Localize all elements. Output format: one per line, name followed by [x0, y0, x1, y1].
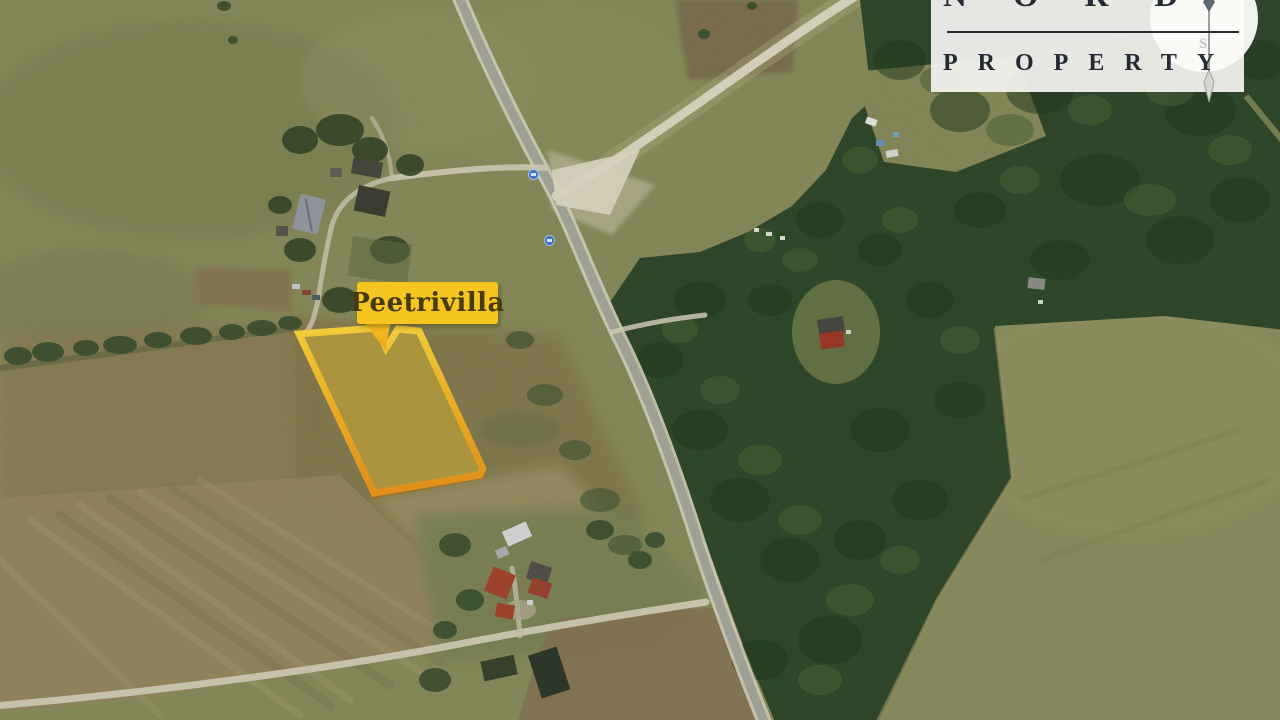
satellite-map-canvas	[0, 0, 1280, 720]
logo-divider	[947, 31, 1239, 33]
logo-line2-property: PROPERTY	[943, 51, 1234, 75]
route-marker-icon	[544, 235, 555, 246]
property-label: Peetrivilla	[357, 282, 498, 324]
property-label-text: Peetrivilla	[350, 288, 505, 318]
route-marker-icon	[528, 169, 539, 180]
route-marker-glyph	[547, 239, 552, 242]
logo-line1-nord: NORD	[943, 0, 1224, 13]
nord-property-logo: S NORD PROPERTY	[931, 0, 1244, 92]
grain-texture	[0, 0, 1280, 720]
route-marker-glyph	[531, 173, 536, 176]
aerial-map: Peetrivilla S NORD PROPERTY	[0, 0, 1280, 720]
